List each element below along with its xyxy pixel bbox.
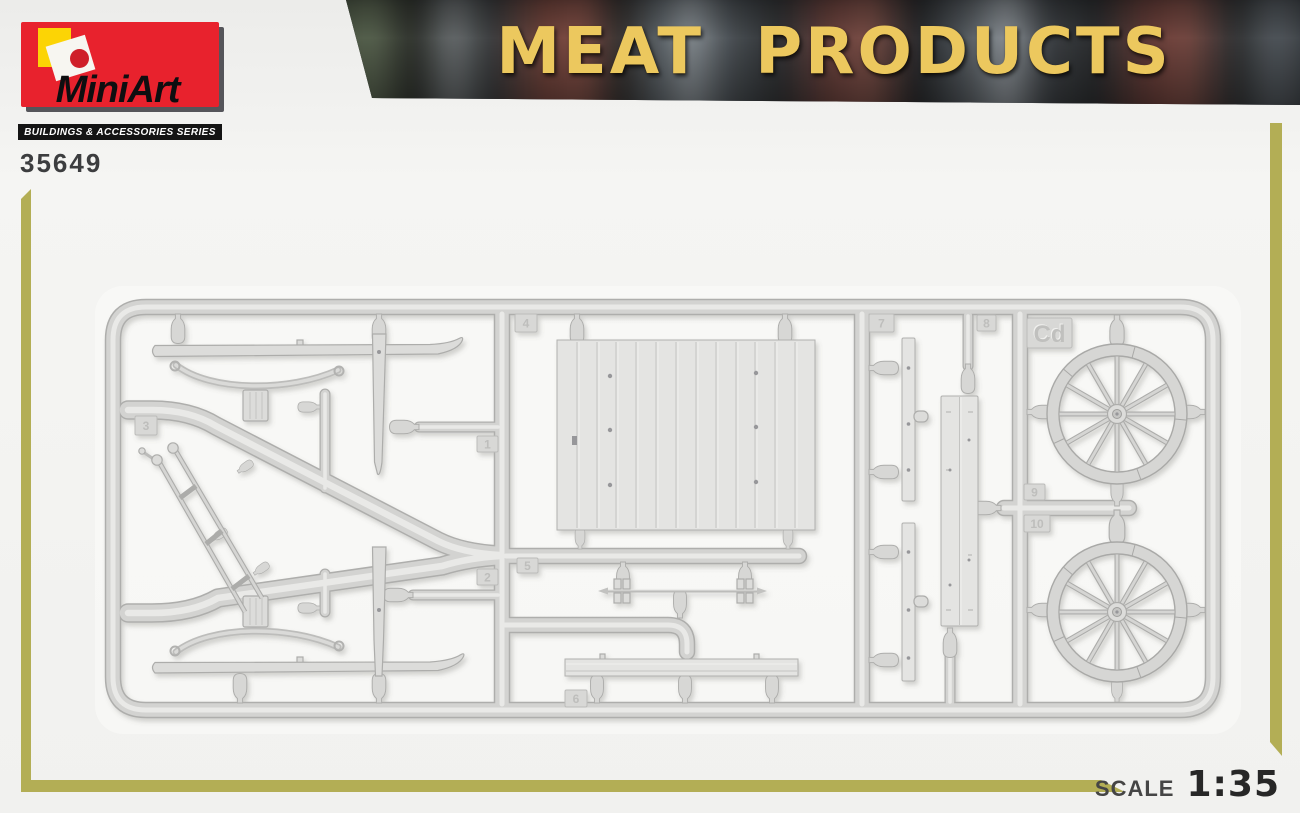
- part-tag-5: 5: [524, 559, 531, 573]
- part-tag-3: 3: [143, 419, 150, 433]
- part-spoked-wheel-top: [1047, 344, 1187, 484]
- part-tag-6: 6: [573, 692, 580, 706]
- scale-indicator: SCALE 1:35: [1095, 764, 1280, 805]
- part-tag-2: 2: [484, 571, 491, 585]
- sprue-code-label: Cd: [1034, 321, 1066, 348]
- part-tag-1: 1: [484, 438, 491, 452]
- scale-value: 1:35: [1186, 764, 1280, 805]
- part-spoked-wheel-bottom: [1047, 542, 1187, 682]
- part-tag-4: 4: [523, 317, 530, 331]
- part-double-board: [941, 396, 978, 626]
- part-planked-platform: [557, 340, 815, 530]
- part-tag-10: 10: [1030, 517, 1044, 531]
- sprue-code-plate: Cd Cd: [1027, 318, 1072, 348]
- part-tag-8: 8: [983, 317, 990, 331]
- box-art-page: MEAT PRODUCTS MiniArt BUILDINGS & ACCESS…: [0, 0, 1300, 813]
- part-tag-7: 7: [878, 317, 885, 331]
- scale-label: SCALE: [1095, 776, 1175, 802]
- part-tag-9: 9: [1031, 486, 1038, 500]
- sprue-illustration: 1 2 3 4 5 6 7 8 9 10: [0, 0, 1300, 813]
